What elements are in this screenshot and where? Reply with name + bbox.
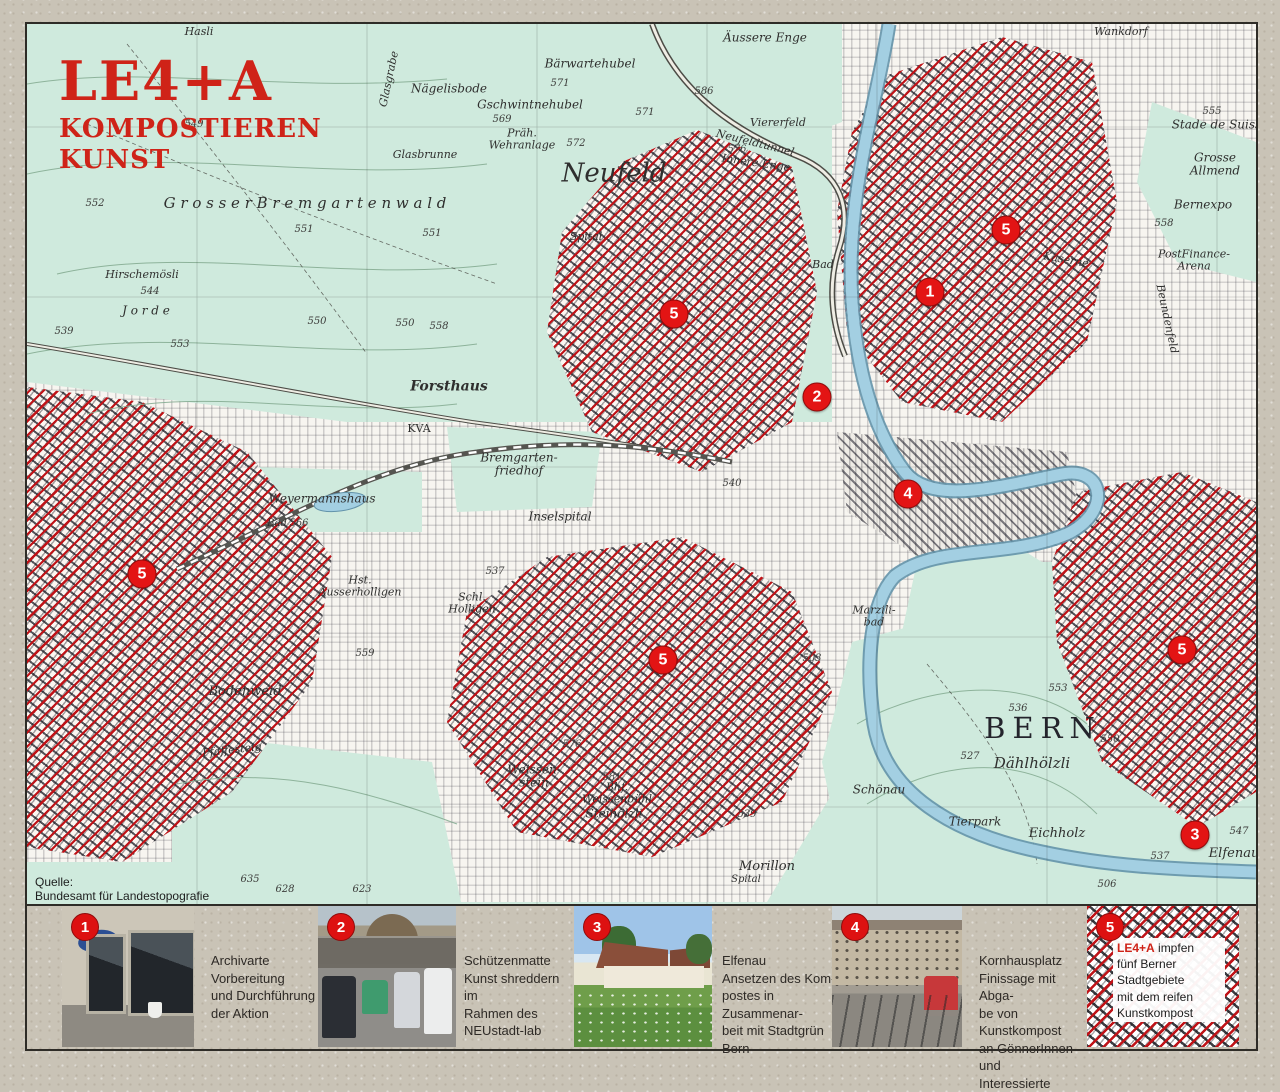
map-label: Viererfeld [750,117,806,129]
legend-photo-elfenau: 3 [574,906,712,1047]
map-marker-5: 5 [660,300,689,329]
map-label: Bernexpo [1174,199,1232,212]
map-label: 527 [960,752,979,763]
map-label: Inselspital [528,511,591,524]
tree [686,934,712,964]
map-label: Weissen- stein [507,763,561,788]
map-label: Grosse Allmend [1190,151,1240,176]
map-marker-5: 5 [649,646,678,675]
map-label: Hirschemösli [105,269,179,281]
map-label: Spital [570,231,603,243]
map-label: 553 [170,340,189,351]
source-note: Quelle: Bundesamt für Landestopografie [35,875,209,904]
legend-badge-4: 4 [841,913,869,941]
map-label: 550 [395,319,414,330]
map-label: 559 [355,649,374,660]
map-label: Marzili- bad [852,604,895,627]
kraft-background: { "title": {"line1": "LE4+A", "line2": "… [0,0,1280,1073]
map-label: 550 [1100,735,1119,746]
map-label: Bodenweid [208,685,281,699]
map-label: 576 [727,145,746,156]
map-label: 555 [1202,107,1221,118]
brand-text: LE4+A [1117,941,1155,955]
map-label: Weyermannshaus [269,493,376,506]
map-label: Hasli [185,26,214,38]
map-label: 581 [602,773,621,784]
railway-line [177,445,732,569]
storefront-window [86,934,126,1014]
farmhouse-roof [596,942,668,968]
legend-photo-archivarte: 1 [62,906,194,1047]
map-label: 547 [1229,827,1248,838]
map-label: 536 [1008,704,1027,715]
map-label: 558 [1154,219,1173,230]
map-marker-5: 5 [1168,636,1197,665]
parked-car [394,972,420,1028]
map-label: Bremgarten- friedhof [480,451,557,476]
parked-van [424,968,452,1034]
map-label: 537 [485,567,504,578]
map-label: Morillon [739,860,795,874]
map-label: 569 [492,115,511,126]
map-label: 571 [550,79,569,90]
map-label: BERN [984,713,1102,743]
map-marker-5: 5 [992,216,1021,245]
map-label: 552 [85,199,104,210]
map-label: Forsthaus [410,380,488,395]
map-label: J o r d e [122,305,170,318]
map-marker-4: 4 [894,480,923,509]
map-marker-2: 2 [803,383,832,412]
tram-tracks [832,995,962,1047]
map-label: 572 [566,139,585,150]
map-panel: HasliGlasgrabeNägelisbode549Bärwartehube… [27,24,1256,904]
map-label: 539 [737,810,756,821]
map-label: Eichholz [1029,827,1086,841]
map-label: Bärwartehubel [545,58,636,71]
map-label: 551 [294,225,313,236]
parked-car [362,980,388,1014]
title-line3: KUNST [59,147,322,173]
legend-photo-kornhausplatz: 4 [832,906,962,1047]
map-label: Stade de Suisse [1172,119,1256,132]
farmhouse-wall [604,966,704,988]
map-marker-1: 1 [916,278,945,307]
map-label: KVA [407,423,430,435]
map-label: Glasbrunne [393,149,458,161]
parked-car [322,976,356,1038]
legend-badge-2: 2 [327,913,355,941]
map-label: 635 [240,875,259,886]
map-label: Bhf. Weissenbühl [582,781,652,804]
poster-frame: HasliGlasgrabeNägelisbode549Bärwartehube… [25,22,1258,1051]
map-label: 553 [1048,684,1067,695]
legend-caption-2: Schützenmatte Kunst shreddern im Rahmen … [458,906,576,1047]
legend-badge-3: 3 [583,913,611,941]
map-label: Elfenau [1209,847,1256,861]
map-label: 544 [140,287,159,298]
map-label: Gschwintnehubel [477,99,583,112]
legend-badge-5: 5 [1096,913,1124,941]
map-marker-3: 3 [1181,821,1210,850]
map-label: Bad [267,519,287,530]
flower-pot [148,1002,162,1018]
map-label: 628 [275,885,294,896]
map-label: 540 [722,479,741,490]
map-label: Bad [812,259,834,271]
map-label: 539 [54,327,73,338]
map-label: Nägelisbode [411,83,487,96]
title-line2: KOMPOSTIEREN [59,116,322,142]
legend-caption-5: LE4+A impfen fünf Berner Stadtgebiete mi… [1113,938,1225,1022]
map-label: Schönau [853,784,906,797]
poster-title: LE4+A KOMPOSTIEREN KUNST [59,54,322,173]
flower-meadow [574,991,712,1047]
legend-caption-4: Kornhausplatz Finissage mit Abga- be von… [962,906,1084,1047]
map-label: 576 [562,740,581,751]
map-label: PostFinance- Arena [1158,248,1230,271]
map-label: 571 [635,108,654,119]
map-label: 550 [307,317,326,328]
map-label: Wankdorf [1094,26,1148,38]
map-label: 537 [1150,852,1169,863]
map-label: Tierpark [949,816,1002,829]
map-label: 623 [352,885,371,896]
map-marker-5: 5 [128,560,157,589]
legend-strip: 1 Archivarte Vorbereitung und Durchführu… [27,904,1256,1047]
legend-photo-map-sample: 5 LE4+A impfen fünf Berner Stadtgebiete … [1087,906,1239,1047]
map-label: Präh. Wehranlage [489,127,556,150]
map-label: G r o s s e r B r e m g a r t e n w a l … [164,196,447,212]
map-label: Äussere Enge [723,32,807,45]
map-label: 506 [1097,880,1116,891]
map-label: Neufeld [562,160,667,187]
map-label: Spital [731,875,761,886]
title-line1: LE4+A [59,54,322,108]
legend-caption-3: Elfenau Ansetzen des Kom- postes in Zusa… [712,906,838,1047]
map-label: Dählhölzli [994,756,1070,772]
map-label: 558 [429,322,448,333]
map-label: 566 [289,519,308,530]
legend-caption-1: Archivarte Vorbereitung und Durchführung… [207,906,335,1047]
map-label: 551 [422,229,441,240]
map-label: Schl. Holligen [448,591,495,614]
map-label: 503 [802,654,821,665]
map-label: Hst. Ausserholligen [319,574,402,597]
map-label: 586 [694,87,713,98]
legend-photo-schuetzenmatte: 2 [318,906,456,1047]
map-label: Steihölzli [586,808,643,821]
legend-badge-1: 1 [71,913,99,941]
